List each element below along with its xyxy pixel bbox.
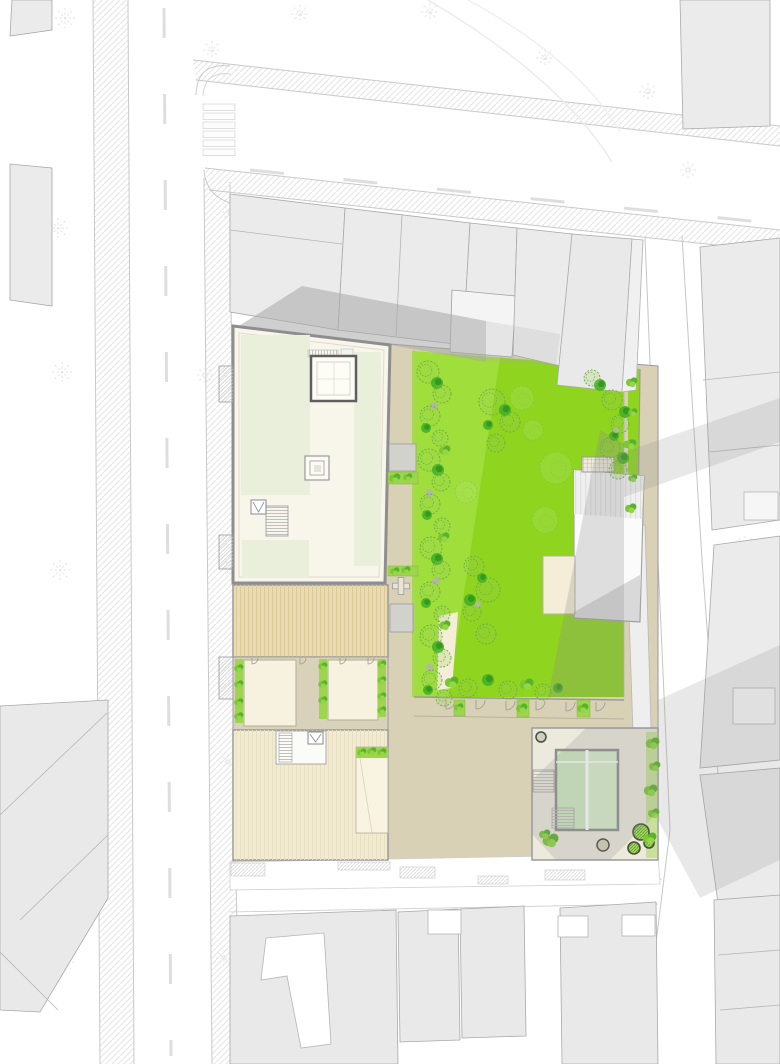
balcony-west xyxy=(219,535,233,569)
tree-outline xyxy=(464,556,484,576)
site-plan xyxy=(0,0,780,1064)
stair-flight xyxy=(279,733,292,762)
vent-box xyxy=(251,500,266,514)
roof-patch xyxy=(241,335,310,495)
courtyard xyxy=(328,660,378,720)
tree-outline xyxy=(476,624,496,644)
tree-faint xyxy=(510,386,534,410)
neighbor-courtyard xyxy=(744,492,778,520)
tree-outline xyxy=(433,385,451,403)
tree-outline xyxy=(433,649,451,667)
neighbor-building xyxy=(10,164,52,306)
south-terrace xyxy=(356,747,388,833)
tree-solid xyxy=(421,423,431,433)
crosswalk-stripe xyxy=(203,104,235,111)
stair-main-building xyxy=(266,506,288,536)
entrance-mat xyxy=(338,862,390,870)
tree-solid xyxy=(482,674,494,686)
tree-outline xyxy=(432,561,450,579)
entrance-mat xyxy=(231,863,265,876)
tree-outline xyxy=(432,473,450,491)
neighbor-courtyard xyxy=(558,916,588,937)
roof-patch xyxy=(354,352,381,566)
roof-patch xyxy=(242,540,309,578)
site-plan-canvas xyxy=(0,0,780,1064)
tree-faint xyxy=(455,481,477,503)
tree-solid xyxy=(499,404,511,416)
tree-outline xyxy=(499,681,517,699)
tree-outline xyxy=(459,679,477,697)
round-tree xyxy=(628,842,640,854)
tree-outline xyxy=(602,390,622,410)
tree-outline xyxy=(436,690,452,706)
courtyard xyxy=(244,660,296,726)
tree-outline xyxy=(434,606,450,622)
tree-solid xyxy=(422,510,432,520)
balcony-west xyxy=(219,366,233,402)
neighbor-building xyxy=(10,0,52,36)
neighbor-building xyxy=(714,895,780,1064)
tree-faint xyxy=(540,452,572,484)
neighbor-building xyxy=(460,906,526,1038)
crosswalk-stripe xyxy=(203,140,235,147)
tree-outline xyxy=(584,370,600,386)
tree-outline xyxy=(420,406,440,426)
neighbor-building xyxy=(700,238,780,530)
tree-solid xyxy=(423,685,433,695)
rock xyxy=(475,601,481,607)
tree-faint xyxy=(532,507,558,533)
crosswalk-stripe xyxy=(203,113,235,120)
tree-outline xyxy=(535,684,551,700)
tree-solid xyxy=(464,594,476,606)
walkway-box xyxy=(389,444,416,471)
crosswalk-stripe xyxy=(203,122,235,129)
entrance-mat xyxy=(545,870,585,880)
crosswalk-stripe xyxy=(203,149,235,156)
tree-solid xyxy=(483,420,493,430)
neighbor-courtyard xyxy=(428,910,461,934)
tree-solid xyxy=(421,598,431,608)
entrance-mat xyxy=(478,876,508,884)
crosswalk-stripe xyxy=(203,131,235,138)
tree-outline xyxy=(432,430,448,446)
tree-faint xyxy=(523,420,543,440)
neighbor-courtyard xyxy=(622,915,655,936)
neighbor-building xyxy=(680,0,770,129)
balcony-west xyxy=(219,657,233,699)
entrance-mat xyxy=(400,867,435,878)
tree-outline xyxy=(487,434,505,452)
tree-solid xyxy=(477,573,487,583)
tree-outline xyxy=(434,518,450,534)
walkway-box xyxy=(390,604,413,632)
terrace-ring-planter xyxy=(536,732,546,742)
bar-building-stripes xyxy=(233,585,388,657)
vent-box xyxy=(308,732,323,744)
rock xyxy=(613,427,619,433)
skylight-main xyxy=(311,356,356,401)
skylight-small-core xyxy=(314,465,321,472)
